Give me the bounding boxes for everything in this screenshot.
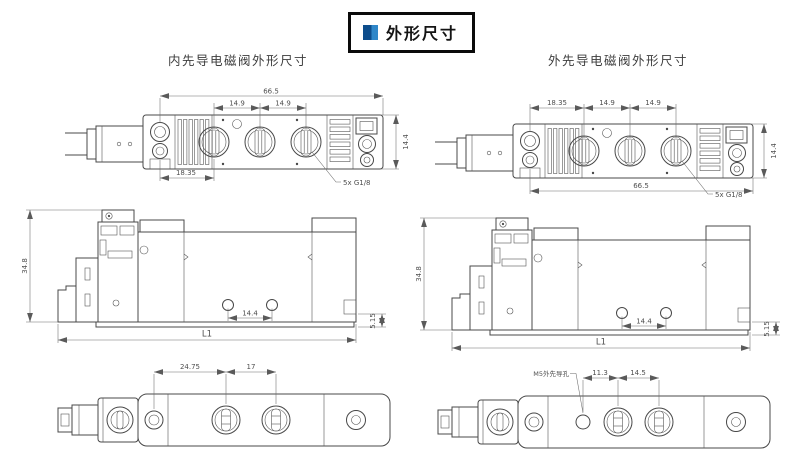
heading-external-pilot: 外先导电磁阀外形尺寸 [548, 50, 688, 69]
valve-body-top-view [65, 115, 383, 169]
dim-pitch-b-label: 14.9 [645, 99, 661, 107]
dim-pitch-a-label: 14.9 [599, 99, 615, 107]
blue-square-icon [363, 25, 378, 40]
dim-port-pitch-label: 14.5 [630, 369, 646, 377]
dim-length-label: L1 [596, 338, 606, 348]
dim-pitch-b-label: 14.9 [275, 100, 291, 108]
valve-body-bottom-view [438, 396, 770, 448]
dimensions: 11.3 14.5 M5外先导孔 [533, 369, 659, 413]
dim-height-label: 34.8 [21, 258, 29, 274]
external-pilot-side-view: 34.8 L1 14.4 5.15 [412, 208, 794, 364]
dimensions: 18.35 14.9 14.9 66.5 14.4 5x G1/8 [530, 99, 778, 199]
internal-pilot-bottom-view: 24.75 17 [50, 358, 395, 458]
valve-body-side-view [452, 218, 750, 335]
datasheet-page: 外形尺寸 内先导电磁阀外形尺寸 外先导电磁阀外形尺寸 66.5 14.9 14.… [0, 0, 800, 460]
dim-overall-label: 66.5 [263, 88, 279, 96]
dim-pilot-to-port-label: 11.3 [592, 369, 608, 377]
dim-overall-label: 66.5 [633, 182, 649, 190]
valve-body-bottom-view [58, 394, 390, 446]
dim-port-offset-label: 24.75 [180, 363, 200, 371]
valve-body-top-view [435, 124, 753, 178]
heading-internal-pilot: 内先导电磁阀外形尺寸 [168, 50, 308, 69]
dim-port-offset-label: 5.15 [369, 313, 377, 329]
dim-pitch-a-label: 14.9 [229, 100, 245, 108]
section-title: 外形尺寸 [386, 20, 458, 44]
dim-height-label: 14.4 [402, 134, 410, 150]
dim-hole-pitch-label: 14.4 [636, 318, 652, 326]
internal-pilot-top-view: 66.5 14.9 14.9 18.35 14.4 5x G1/8 [60, 85, 415, 197]
dim-port-offset-label: 5.15 [763, 321, 771, 337]
dim-hole-pitch-label: 14.4 [242, 310, 258, 318]
port-note-label: 5x G1/8 [343, 179, 371, 187]
section-title-box: 外形尺寸 [348, 12, 475, 53]
pilot-hole [576, 415, 590, 429]
dim-length-label: L1 [202, 330, 212, 340]
dimensions: 24.75 17 [154, 363, 276, 409]
pilot-note-label: M5外先导孔 [533, 369, 569, 378]
valve-body-side-view [58, 210, 356, 327]
dim-end-offset-label: 18.35 [176, 169, 196, 177]
dim-height-label: 34.8 [415, 266, 423, 282]
dim-port-pitch-label: 17 [247, 363, 256, 371]
port-note-label: 5x G1/8 [715, 191, 743, 199]
dim-end-offset-label: 18.35 [547, 99, 567, 107]
external-pilot-bottom-view: 11.3 14.5 M5外先导孔 [432, 356, 794, 458]
internal-pilot-side-view: 34.8 L1 14.4 5.15 [18, 200, 400, 356]
external-pilot-top-view: 18.35 14.9 14.9 66.5 14.4 5x G1/8 [430, 88, 798, 210]
dim-height-label: 14.4 [770, 143, 778, 159]
